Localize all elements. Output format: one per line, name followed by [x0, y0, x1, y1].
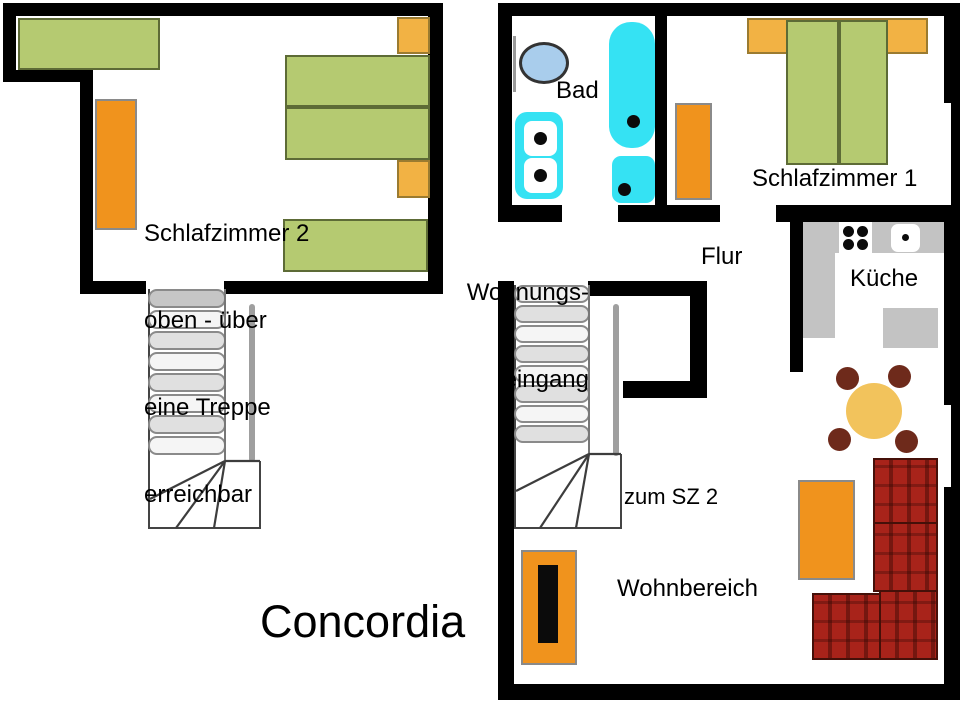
label-schlafzimmer1: Schlafzimmer 1 [752, 164, 917, 193]
wall-kitchen-left [790, 222, 803, 372]
wall-sz2-right [428, 3, 443, 294]
wall-apt-bottom [498, 684, 960, 700]
wall-apt-top [498, 3, 957, 16]
dining-chair-2 [888, 365, 911, 388]
dining-chair-1 [836, 367, 859, 390]
plan-title: Concordia Wohnung 9 2. OG 90qm [260, 497, 489, 702]
floor-plan: Schlafzimmer 2 oben - über eine Treppe e… [0, 0, 960, 702]
sofa-corner [879, 590, 938, 660]
tv-screen [538, 565, 558, 643]
kitchen-stove [839, 222, 872, 253]
kitchen-sink [891, 224, 920, 252]
burner-2 [857, 226, 868, 237]
burner-4 [857, 239, 868, 250]
sz2-nightstand-top [397, 17, 430, 54]
label-zum-sz2: zum SZ 2 [624, 482, 718, 511]
label-bad: Bad [556, 76, 599, 105]
sofa-cushion-1 [873, 458, 938, 524]
washer-dot-bottom [534, 169, 547, 182]
label-flur: Flur [701, 242, 742, 271]
wall-bad-right [655, 16, 667, 207]
wall-apt-right-a [944, 3, 960, 103]
label-wohnungseingang: Wohnungs- eingang [444, 220, 589, 452]
kitchen-sink-drain [902, 234, 909, 241]
wall-sz2-left-lower [80, 70, 93, 294]
sz1-double-bed [786, 20, 888, 165]
bad-mirror [513, 36, 516, 92]
flur-wardrobe [675, 103, 712, 200]
washer-dot-top [534, 132, 547, 145]
label-wohnungseingang-line1: Wohnungs- [444, 278, 589, 307]
wall-apt-right-window1 [951, 103, 960, 205]
bathtub-drain [627, 115, 640, 128]
tv-sideboard [521, 550, 577, 665]
sz2-shelf [18, 18, 160, 70]
burner-1 [843, 226, 854, 237]
sz2-double-bed [285, 55, 430, 160]
wall-apt-left-upper [498, 3, 512, 222]
bad-toilet [612, 156, 655, 203]
wall-kitchen-top [776, 205, 957, 222]
wall-sz2-bottom-left [80, 281, 146, 294]
wall-stairwell-box-bottom [623, 381, 707, 398]
label-wohnbereich: Wohnbereich [617, 574, 758, 603]
sofa-chaise [812, 593, 881, 660]
sz2-note-line2: oben - über [144, 306, 309, 335]
title-line1: Concordia [260, 597, 489, 647]
label-wohnungseingang-line2: eingang [444, 365, 589, 394]
dining-chair-4 [895, 430, 918, 453]
wall-hall-top [618, 205, 720, 222]
sz2-note-line3: eine Treppe [144, 393, 309, 422]
coffee-table [798, 480, 855, 580]
sz2-nightstand-bottom [397, 160, 430, 198]
label-kueche: Küche [850, 264, 918, 293]
burner-3 [843, 239, 854, 250]
bad-bathtub [609, 22, 655, 148]
kitchen-counter-top [803, 222, 944, 253]
sofa-cushion-2 [873, 522, 938, 592]
sz2-bed-seam [287, 105, 428, 109]
dining-table [846, 383, 902, 439]
sz2-note-line1: Schlafzimmer 2 [144, 219, 309, 248]
sz1-bed-seam [837, 22, 841, 163]
wall-apt-right-window2 [951, 405, 960, 487]
bad-washer-unit [515, 112, 563, 199]
dining-chair-3 [828, 428, 851, 451]
wall-sz2-top [3, 3, 443, 16]
toilet-dot [618, 183, 631, 196]
wall-apt-right-c [944, 487, 960, 700]
kitchen-island [883, 308, 938, 348]
kitchen-counter-left [803, 253, 835, 338]
sz2-wardrobe [95, 99, 137, 230]
wall-apt-right-b [944, 205, 960, 405]
